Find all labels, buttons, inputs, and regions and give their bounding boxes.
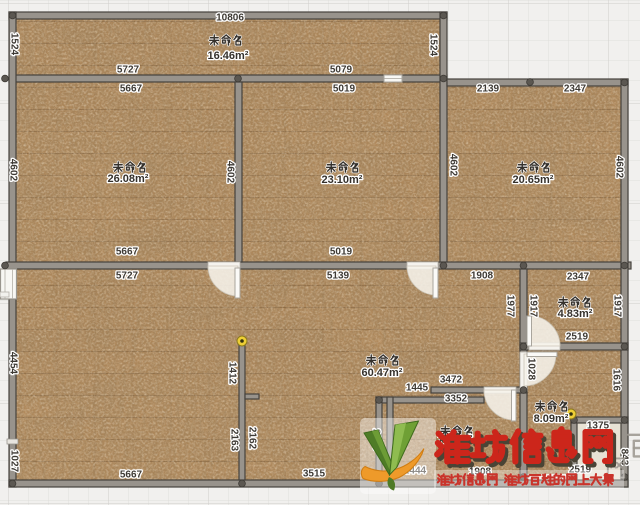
svg-text:4454: 4454 [8, 352, 19, 375]
svg-text:1028: 1028 [526, 358, 537, 381]
svg-text:2347: 2347 [564, 84, 587, 95]
svg-text:4602: 4602 [614, 156, 625, 179]
svg-text:5019: 5019 [333, 84, 356, 95]
svg-text:2519: 2519 [566, 332, 589, 343]
svg-text:2139: 2139 [477, 84, 500, 95]
svg-text:10806: 10806 [216, 13, 244, 24]
svg-text:2347: 2347 [567, 272, 590, 283]
svg-text:4.83m²: 4.83m² [558, 308, 593, 320]
svg-text:1616: 1616 [611, 369, 622, 392]
svg-text:5019: 5019 [330, 247, 353, 258]
svg-text:1524: 1524 [428, 34, 439, 57]
svg-text:1445: 1445 [406, 383, 429, 394]
svg-text:26.08m²: 26.08m² [108, 173, 149, 185]
svg-text:5667: 5667 [116, 247, 139, 258]
svg-text:60.47m²: 60.47m² [362, 367, 403, 379]
svg-text:4602: 4602 [8, 159, 19, 182]
svg-text:5139: 5139 [327, 271, 350, 282]
svg-text:4602: 4602 [448, 154, 459, 177]
svg-text:3515: 3515 [303, 469, 326, 480]
svg-text:5079: 5079 [330, 65, 353, 76]
svg-text:5727: 5727 [117, 65, 140, 76]
svg-text:2162: 2162 [247, 427, 258, 450]
svg-text:4602: 4602 [225, 161, 236, 184]
svg-text:5727: 5727 [116, 271, 139, 282]
svg-text:3472: 3472 [440, 375, 463, 386]
svg-text:1917: 1917 [612, 295, 623, 318]
svg-text:2163: 2163 [229, 429, 240, 452]
svg-text:8.09m²: 8.09m² [534, 413, 569, 425]
svg-text:16.46m²: 16.46m² [208, 50, 249, 62]
svg-text:1977: 1977 [505, 295, 516, 318]
svg-text:5667: 5667 [120, 470, 143, 481]
svg-text:23.10m²: 23.10m² [322, 174, 363, 186]
svg-text:1908: 1908 [471, 271, 494, 282]
svg-text:1412: 1412 [227, 362, 238, 385]
svg-text:3352: 3352 [445, 394, 468, 405]
svg-text:5667: 5667 [120, 84, 143, 95]
svg-text:1027: 1027 [9, 450, 20, 473]
svg-text:20.65m²: 20.65m² [513, 174, 554, 186]
svg-text:1524: 1524 [9, 33, 20, 56]
svg-text:1917: 1917 [528, 295, 539, 318]
